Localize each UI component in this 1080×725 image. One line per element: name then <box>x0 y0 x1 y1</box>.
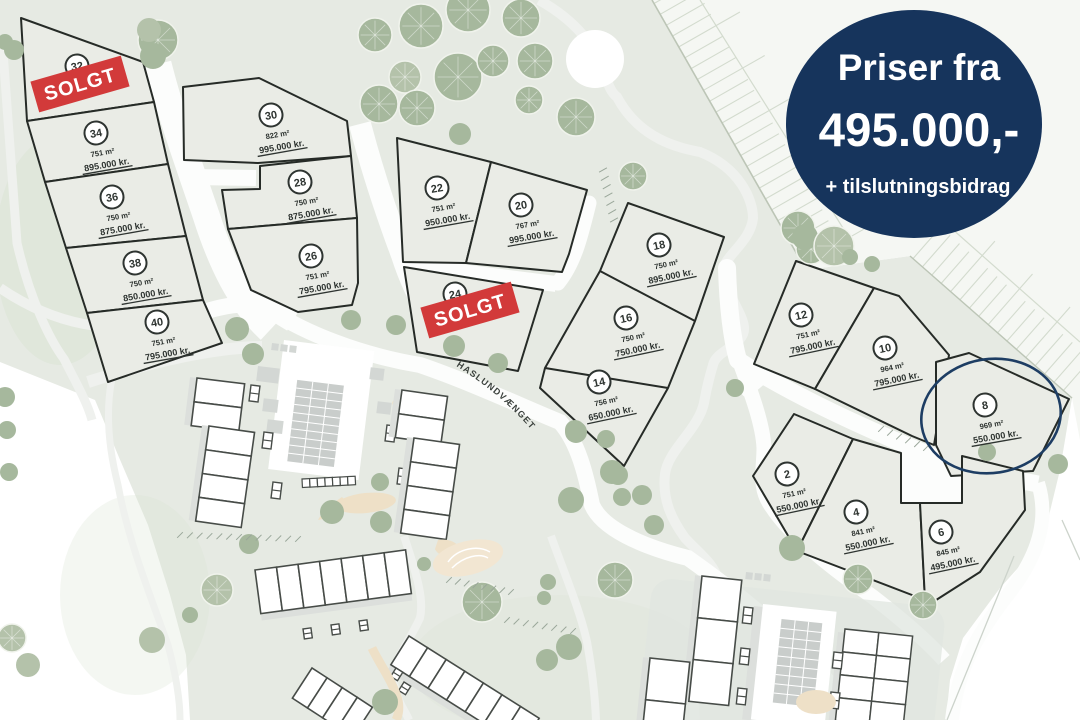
svg-text:495.000,-: 495.000,- <box>819 104 1020 157</box>
svg-text:Priser fra: Priser fra <box>838 47 1001 88</box>
svg-text:10: 10 <box>878 342 892 356</box>
svg-text:40: 40 <box>150 316 164 330</box>
svg-text:+ tilslutningsbidrag: + tilslutningsbidrag <box>825 176 1010 198</box>
svg-text:26: 26 <box>304 250 318 264</box>
svg-text:18: 18 <box>652 239 666 253</box>
svg-text:28: 28 <box>293 176 307 190</box>
svg-text:12: 12 <box>794 309 808 323</box>
svg-text:22: 22 <box>430 182 444 196</box>
svg-text:38: 38 <box>128 257 142 271</box>
svg-text:16: 16 <box>619 312 633 326</box>
svg-text:20: 20 <box>514 199 528 213</box>
svg-text:30: 30 <box>264 109 278 123</box>
svg-text:36: 36 <box>105 191 119 205</box>
